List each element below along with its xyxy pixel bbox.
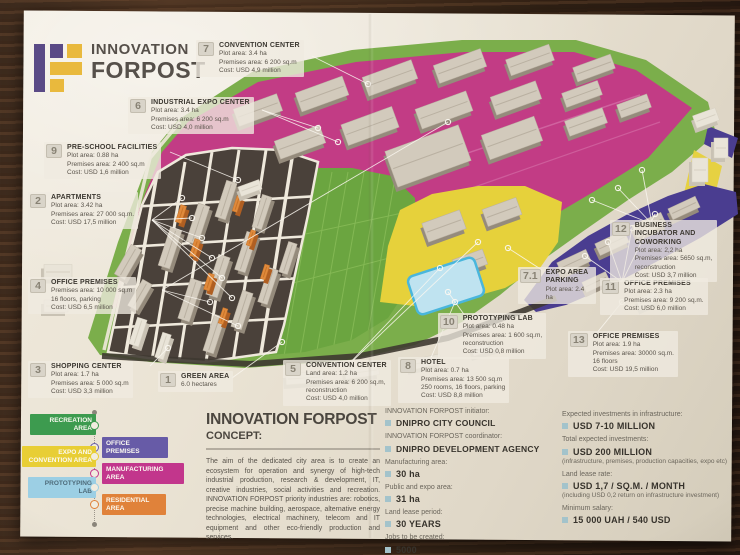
label-number-badge: 9 [46,144,62,158]
map-label-3: 3SHOPPING CENTERPlot area: 1.7 haPremise… [28,361,133,398]
label-detail: Cost: USD 8,8 million [421,392,505,400]
bullet-square-icon [385,496,391,502]
legend-item: EXPO AND CONVENTION AREA [22,446,96,467]
label-number-badge: 3 [30,363,46,377]
info-value: 30 ha [396,469,420,479]
legend-node [90,483,99,492]
legend-item: RESIDENTIAL AREA [102,494,166,515]
info-value: 15 000 UAH / 540 USD [573,515,671,525]
info-value: 5000 [396,545,417,555]
legend-line-end-dot [92,522,97,527]
label-detail: Premises area: 5650 sq.m, [635,255,713,263]
label-number-badge: 7.1 [520,269,541,283]
label-detail: Cost: USD 4,0 million [306,395,387,403]
map-label-9: 9PRE-SCHOOL FACILITIESPlot area: 0.88 ha… [44,142,161,179]
label-detail: Plot area: 2,2 ha [635,247,713,255]
label-detail: Premises area: 5 000 sq.m [51,380,129,388]
label-detail: Premises area: 10 000 sq.m [51,287,132,295]
brand-line1: INNOVATION [91,42,206,57]
label-detail: Plot area: 3.42 ha [51,202,134,210]
label-detail: Premises area: 30000 sq.m. [593,350,674,358]
info-label: Land lease period: [385,509,560,518]
label-detail: Premises area: 9 200 sq.m. [624,297,703,305]
label-detail: Cost: USD 4,0 million [151,124,250,132]
legend-item: PROTOTYPING LAB [28,477,96,498]
map-label-2: 2APARTMENTSPlot area: 3.42 haPremises ar… [28,192,138,229]
label-number-badge: 13 [570,333,588,347]
investments-column: Expected investments in infrastructure:U… [562,411,738,530]
label-title: BUSINESS INCUBATOR AND COWORKING [635,222,713,247]
info-value: 30 YEARS [396,519,441,529]
map-label-13: 13OFFICE PREMISESPlot area: 1.9 haPremis… [568,331,678,377]
label-title: CONVENTION CENTER [219,42,300,50]
label-title: EXPO AREA PARKING [546,269,592,286]
bullet-square-icon [562,449,568,455]
photo-of-brochure: INNOVATION FORPOST 7CONVENTION CENTERPlo… [0,0,740,555]
legend-item: RECREATION AREA [30,414,96,435]
legend-node [90,452,99,461]
label-detail: Land area: 1.2 ha [306,370,387,378]
legend-node [90,421,99,430]
legend-item: OFFICE PREMISES [102,437,168,458]
info-label: Total expected investments: [562,436,738,445]
concept-section: INNOVATION FORPOST CONCEPT: The aim of t… [206,412,380,543]
bullet-square-icon [562,483,568,489]
label-detail: Plot area: 2.3 ha [624,288,703,296]
map-label-12: 12BUSINESS INCUBATOR AND COWORKINGPlot a… [610,220,717,282]
label-title: HOTEL [421,359,505,367]
map-label-5: 5CONVENTION CENTERLand area: 1.2 haPremi… [283,360,391,406]
concept-body: The aim of the dedicated city area is to… [206,457,380,543]
map-label-7: 7CONVENTION CENTERPlot area: 3.4 haPremi… [196,40,304,77]
label-title: INDUSTRIAL EXPO CENTER [151,99,250,107]
map-label-1: 1GREEN AREA6.0 hectares [158,371,233,392]
label-detail: Cost: USD 0,8 million [463,348,542,356]
label-detail: Plot area: 0.7 ha [421,367,505,375]
label-title: PRE-SCHOOL FACILITIES [67,144,157,152]
label-detail: Cost: USD 1,6 million [67,169,157,177]
map-label-7.1: 7.1EXPO AREA PARKINGPlot area: 2.4 ha [518,267,596,304]
legend-node [90,500,99,509]
bullet-square-icon [385,420,391,426]
logo: INNOVATION FORPOST [34,42,206,92]
label-detail: Cost: USD 19,5 million [593,366,674,374]
bullet-square-icon [385,446,391,452]
info-label: Expected investments in infrastructure: [562,411,738,420]
info-label: INNOVATION FORPOST coordinator: [385,433,560,442]
label-detail: Plot area: 3.4 ha [151,107,250,115]
map-label-8: 8HOTELPlot area: 0.7 haPremises area: 13… [398,357,509,403]
info-note: (infrastructure, premises, production ca… [562,458,738,466]
label-detail: Premises area: 1 600 sq.m, [463,332,542,340]
label-detail: 250 rooms, 16 floors, parking [421,384,505,392]
label-title: PROTOTYPING LAB [463,315,542,323]
label-number-badge: 5 [285,362,301,376]
bullet-square-icon [385,547,391,553]
brand-line2: FORPOST [91,59,206,82]
label-detail: Cost: USD 4,9 million [219,67,300,75]
label-title: OFFICE PREMISES [593,333,674,341]
label-number-badge: 4 [30,279,46,293]
info-value: USD 200 MILLION [573,447,652,457]
label-number-badge: 1 [160,373,176,387]
bullet-square-icon [385,521,391,527]
label-detail: reconstruction [463,340,542,348]
label-detail: Cost: USD 17,5 million [51,219,134,227]
label-detail: Cost: USD 3,7 million [635,272,713,280]
label-detail: Plot area: 1.9 ha [593,341,674,349]
map-label-4: 4OFFICE PREMISESPremises area: 10 000 sq… [28,277,136,314]
label-title: GREEN AREA [181,373,229,381]
facts-column: INNOVATION FORPOST initiator:DNIPRO CITY… [385,408,560,555]
label-title: SHOPPING CENTER [51,363,129,371]
info-value: USD 7-10 MILLION [573,421,655,431]
logo-if-mark-icon [34,42,82,92]
label-detail: Premises area: 6 200 sq.m, [306,379,387,387]
label-detail: Plot area: 1.7 ha [51,371,129,379]
info-value: 31 ha [396,494,420,504]
bullet-square-icon [562,423,568,429]
info-note: (including USD 0,2 return on infrastruct… [562,492,738,500]
concept-title: INNOVATION FORPOST [206,412,380,428]
info-label: Public and expo area: [385,484,560,493]
info-label: Land lease rate: [562,471,738,480]
label-detail: Premises area: 27 000 sq.m. [51,211,134,219]
label-number-badge: 2 [30,194,46,208]
info-label: Minimum salary: [562,505,738,514]
info-label: Jobs to be created: [385,534,560,543]
label-title: APARTMENTS [51,194,134,202]
label-title: CONVENTION CENTER [306,362,387,370]
label-number-badge: 6 [130,99,146,113]
legend-item: MANUFACTURING AREA [102,463,184,484]
bullet-square-icon [562,517,568,523]
label-title: OFFICE PREMISES [51,279,132,287]
label-detail: 16 floors, parking [51,296,132,304]
label-number-badge: 11 [602,280,619,294]
bullet-square-icon [385,471,391,477]
info-label: Manufacturing area: [385,459,560,468]
map-label-10: 10PROTOTYPING LABPlot area: 0.48 haPremi… [438,313,546,359]
label-number-badge: 8 [400,359,416,373]
label-detail: reconstruction [306,387,387,395]
map-label-6: 6INDUSTRIAL EXPO CENTERPlot area: 3.4 ha… [128,97,254,134]
label-detail: Premises area: 6 200 sq.m [219,59,300,67]
label-number-badge: 7 [198,42,214,56]
info-label: INNOVATION FORPOST initiator: [385,408,560,417]
label-detail: Cost: USD 3,3 million [51,388,129,396]
info-value: DNIPRO CITY COUNCIL [396,418,496,428]
info-value: DNIPRO DEVELOPMENT AGENCY [396,444,540,454]
label-detail: 16 floors [593,358,674,366]
label-detail: Cost: USD 6,0 million [624,305,703,313]
map-label-11: 11OFFICE PREMISESPlot area: 2.3 haPremis… [600,278,708,315]
label-detail: Premises area: 2 400 sq.m [67,161,157,169]
label-detail: reconstruction [635,264,713,272]
label-detail: Plot area: 0.88 ha [67,152,157,160]
label-detail: Premises area: 6 200 sq.m [151,116,250,124]
label-detail: Plot area: 0.48 ha [463,323,542,331]
info-value: USD 1,7 / SQ.M. / MONTH [573,481,685,491]
label-detail: Cost: USD 6,5 million [51,304,132,312]
label-number-badge: 10 [440,315,458,329]
label-detail: Plot area: 3.4 ha [219,50,300,58]
divider [206,448,380,450]
label-detail: Premises area: 13 500 sq.m [421,376,505,384]
concept-subtitle: CONCEPT: [206,430,380,442]
label-number-badge: 12 [612,222,630,236]
label-detail: 6.0 hectares [181,381,229,389]
label-detail: Plot area: 2.4 ha [546,286,592,303]
